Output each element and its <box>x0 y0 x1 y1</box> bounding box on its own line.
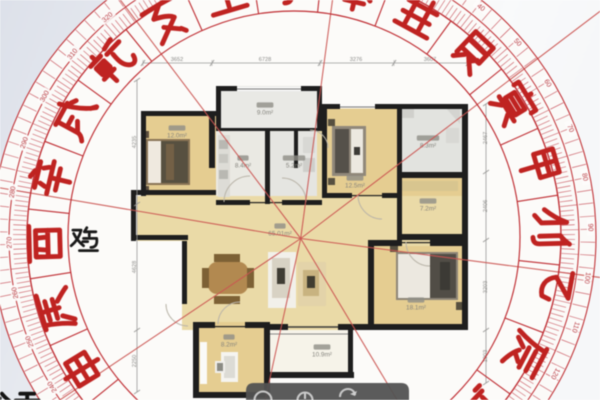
svg-text:3203: 3203 <box>483 281 489 293</box>
svg-text:6728: 6728 <box>259 57 271 63</box>
svg-text:3276: 3276 <box>350 57 362 63</box>
svg-text:8.2m²: 8.2m² <box>221 342 237 349</box>
svg-text:5.2m²: 5.2m² <box>286 163 302 170</box>
svg-text:90: 90 <box>586 223 593 231</box>
svg-text:9.0m²: 9.0m² <box>257 110 273 117</box>
svg-text:18.1m²: 18.1m² <box>406 305 426 312</box>
svg-text:3652: 3652 <box>171 57 183 63</box>
svg-text:270: 270 <box>6 237 13 249</box>
svg-text:2406: 2406 <box>483 200 489 212</box>
svg-text:2467: 2467 <box>483 132 489 144</box>
svg-text:12.5m²: 12.5m² <box>345 183 365 190</box>
svg-text:2250: 2250 <box>132 355 138 367</box>
svg-text:7.2m²: 7.2m² <box>420 206 436 213</box>
svg-text:4628: 4628 <box>132 261 138 273</box>
svg-text:8.4m²: 8.4m² <box>235 163 251 170</box>
svg-text:4235: 4235 <box>132 136 138 148</box>
svg-text:12.0m²: 12.0m² <box>167 133 187 140</box>
svg-text:10.9m²: 10.9m² <box>312 352 332 359</box>
